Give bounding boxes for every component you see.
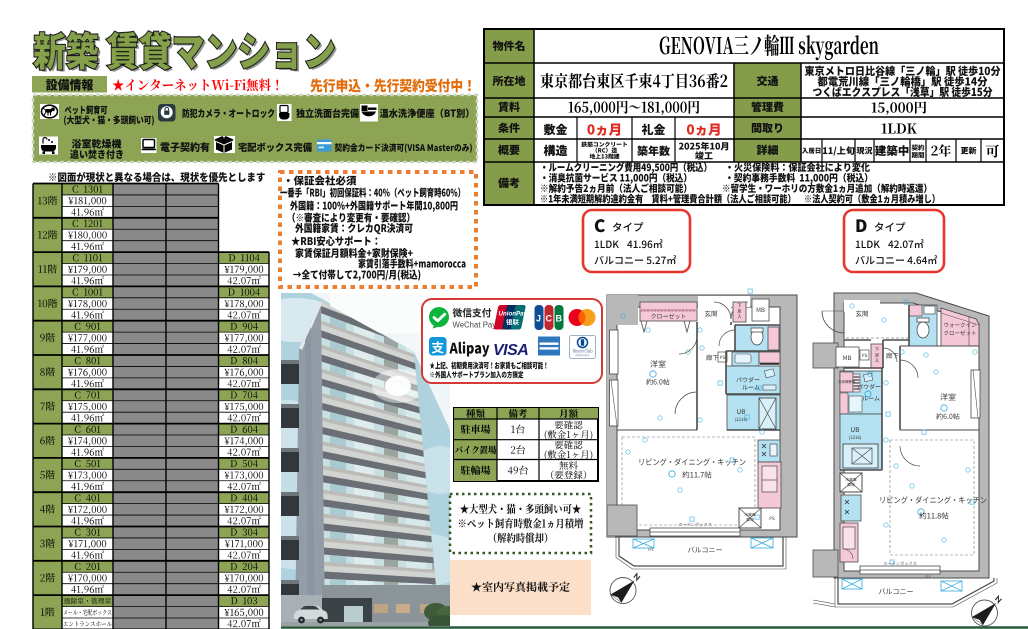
svg-text:WeChat Pay: WeChat Pay [453, 321, 497, 330]
svg-text:UnionPay: UnionPay [499, 311, 528, 318]
svg-text:J: J [536, 314, 541, 324]
svg-text:B: B [556, 314, 563, 324]
svg-text:C: C [546, 314, 553, 324]
svg-text:VISA: VISA [493, 342, 528, 359]
